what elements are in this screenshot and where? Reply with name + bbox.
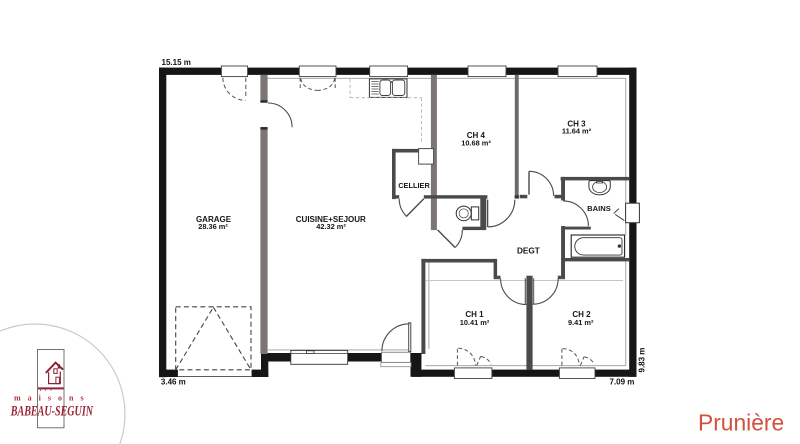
svg-text:28.36 m²: 28.36 m² — [198, 222, 228, 231]
svg-text:maisons: maisons — [14, 394, 91, 403]
svg-text:9.83 m: 9.83 m — [638, 348, 647, 373]
svg-text:15.15 m: 15.15 m — [162, 58, 191, 67]
svg-text:10.68 m²: 10.68 m² — [461, 138, 491, 147]
svg-text:BABEAU-SEGUIN: BABEAU-SEGUIN — [10, 403, 94, 419]
svg-text:3.46 m: 3.46 m — [161, 378, 186, 387]
svg-text:10.41 m²: 10.41 m² — [460, 318, 490, 327]
svg-text:BAINS: BAINS — [587, 204, 611, 213]
svg-text:CELLIER: CELLIER — [398, 181, 430, 190]
svg-text:42.32 m²: 42.32 m² — [316, 222, 346, 231]
svg-text:Prunière: Prunière — [698, 410, 784, 436]
svg-text:7.09 m: 7.09 m — [610, 377, 635, 386]
svg-text:11.64 m²: 11.64 m² — [562, 127, 592, 136]
svg-text:DEGT: DEGT — [517, 247, 540, 256]
svg-text:9.41 m²: 9.41 m² — [568, 318, 594, 327]
